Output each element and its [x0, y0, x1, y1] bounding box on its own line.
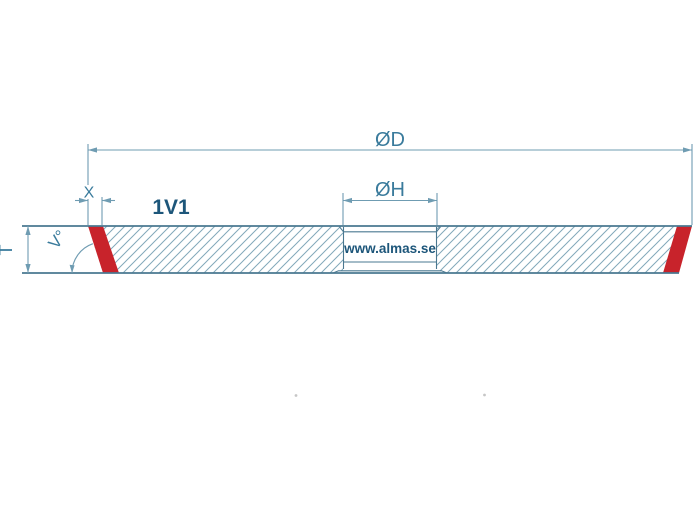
angle-label: V° — [45, 227, 71, 253]
arrowhead-left — [343, 198, 352, 203]
dimension-abrasive-width: X — [75, 185, 115, 226]
arrowhead-right — [428, 198, 437, 203]
arrowhead-right — [683, 147, 692, 152]
artifact-dot — [295, 394, 298, 397]
wheel-profile-drawing: ØD ØH X T — [0, 0, 700, 525]
arrowhead-bottom — [25, 264, 30, 273]
arc-arrowhead — [70, 265, 75, 273]
arrowhead-top — [25, 226, 30, 235]
angle-arc — [72, 244, 93, 273]
dimension-thickness: T — [0, 226, 31, 273]
thickness-label: T — [0, 245, 16, 256]
hole-diameter-label: ØH — [375, 179, 405, 201]
outer-diameter-label: ØD — [375, 129, 405, 151]
arrowhead-left — [88, 147, 97, 152]
drawing-canvas: ØD ØH X T — [0, 0, 700, 525]
abrasive-width-label: X — [84, 185, 95, 202]
arrowhead-right — [102, 198, 111, 203]
artifact-dot — [483, 394, 486, 397]
dimension-bevel-angle: V° — [45, 227, 93, 273]
watermark-url: www.almas.se — [343, 241, 436, 256]
dimension-hole-diameter: ØH — [343, 179, 437, 225]
profile-designation-label: 1V1 — [152, 196, 190, 219]
